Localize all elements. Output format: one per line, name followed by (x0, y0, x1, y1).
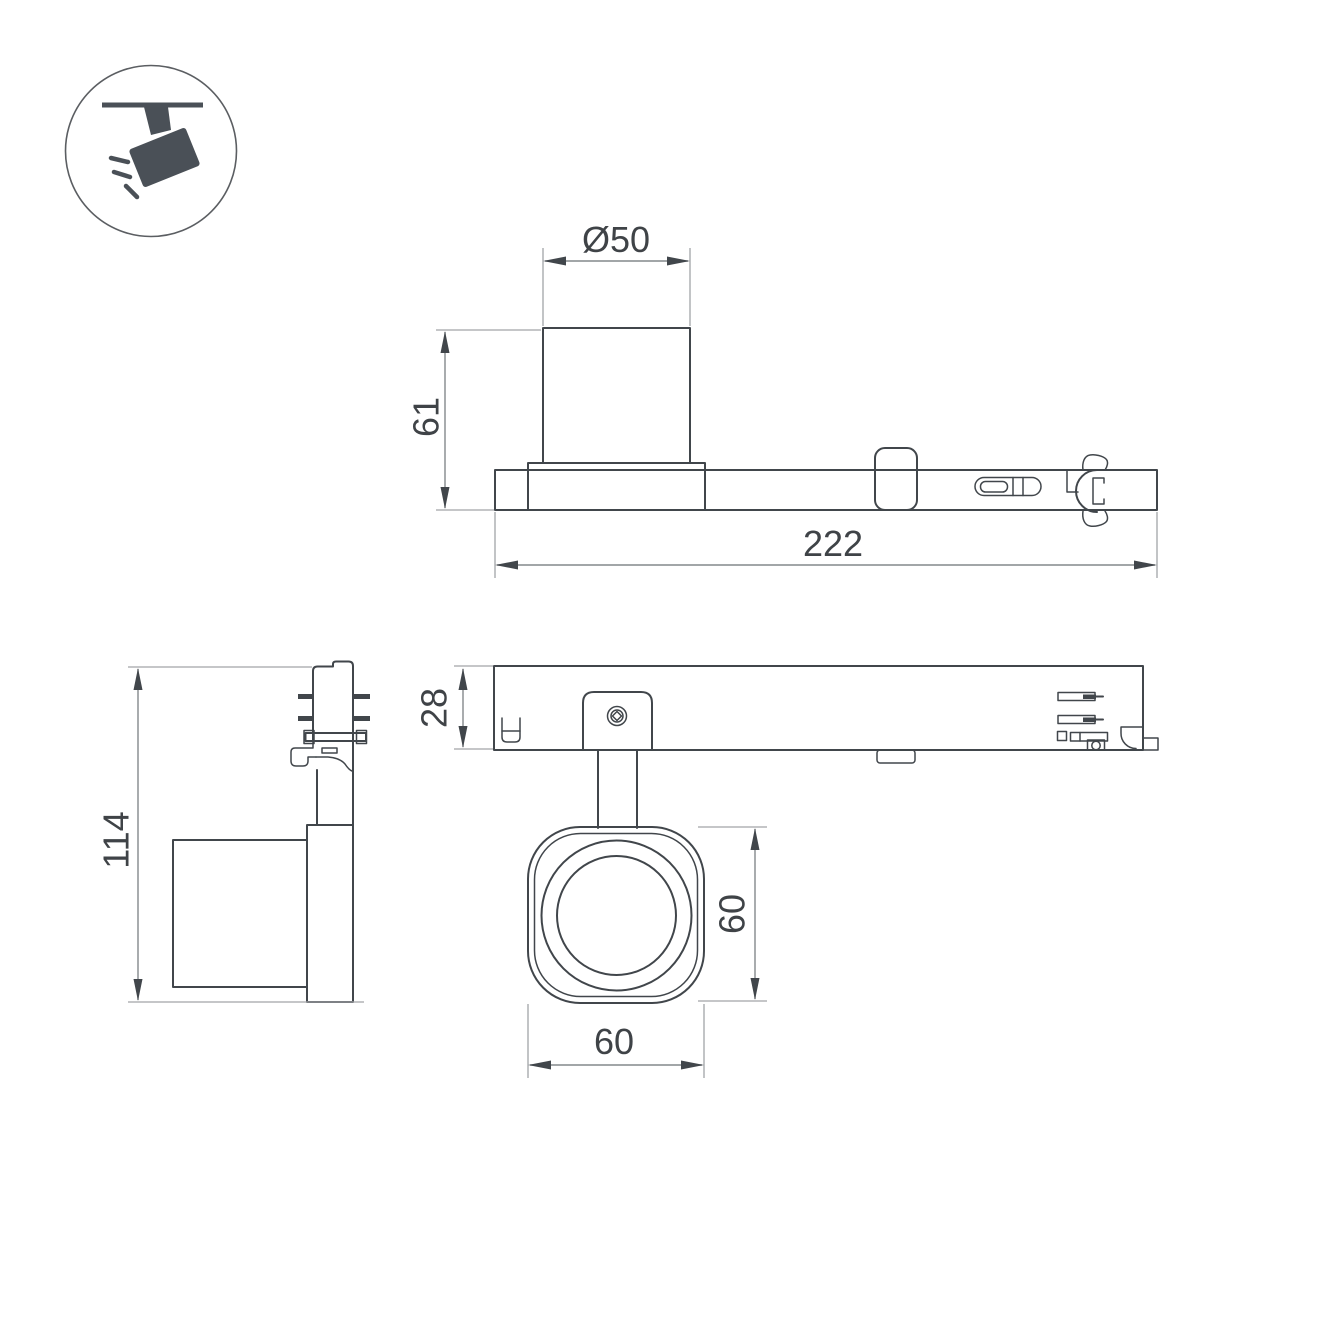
dim-label-diameter: Ø50 (582, 219, 650, 260)
end-latch (1067, 455, 1108, 527)
dim-total-height: 114 (96, 667, 365, 1002)
dim-label-height-114: 114 (96, 811, 137, 868)
clip-tab (877, 750, 915, 763)
track-adapter (313, 662, 353, 742)
dim-head-width: 60 (528, 1004, 704, 1078)
front-view-outline (173, 662, 370, 1003)
latch-top-flap (1083, 455, 1108, 470)
u-bracket (502, 718, 520, 742)
contact-prongs (298, 694, 370, 721)
lens-ring-inner (557, 856, 676, 975)
lamp-stem (144, 107, 171, 135)
dim-label-track-28: 28 (414, 688, 455, 728)
light-rays (111, 158, 137, 197)
dim-label-height-61: 61 (406, 397, 447, 437)
end-tab (1143, 738, 1158, 750)
lens-ring-outer (542, 841, 692, 991)
dim-lens-diameter: Ø50 (543, 219, 690, 326)
side-view: Ø50 61 222 (406, 219, 1158, 578)
dim-label-length-222: 222 (803, 523, 863, 564)
front-view: 114 (96, 662, 371, 1003)
driver-cylinder (543, 328, 690, 463)
track-spotlight-icon (66, 66, 237, 237)
yoke-profile (316, 757, 352, 771)
latch-detail (322, 748, 337, 753)
screw (608, 707, 627, 726)
lamp-head-plan (528, 827, 704, 1003)
dim-track-height: 28 (414, 666, 494, 749)
dim-head-height: 60 (698, 827, 767, 1001)
lock-slider (975, 478, 1041, 496)
plan-view: 28 60 60 (414, 666, 1159, 1078)
dim-fixture-height: 61 (406, 330, 542, 510)
hook-clip (291, 741, 316, 766)
dim-label-head-60v: 60 (712, 894, 753, 934)
latch-horseshoe (1076, 470, 1097, 512)
track-rail-plan (494, 666, 1143, 750)
corner-notch (1121, 727, 1143, 749)
track-rail (495, 470, 1157, 510)
latch-bottom-flap (1083, 511, 1108, 526)
lamp-body-side (307, 825, 353, 1002)
dim-total-length: 222 (495, 512, 1157, 578)
lamp-head-side (173, 840, 307, 987)
side-view-outline (495, 328, 1157, 526)
dim-label-head-60h: 60 (594, 1021, 634, 1062)
clip-block (875, 448, 917, 510)
plan-view-outline (494, 666, 1158, 1003)
lamp-body (129, 127, 201, 188)
technical-drawing: Ø50 61 222 (0, 0, 1331, 1331)
ceiling-line (102, 103, 203, 108)
dimension-drawing-page: Ø50 61 222 (0, 0, 1331, 1331)
